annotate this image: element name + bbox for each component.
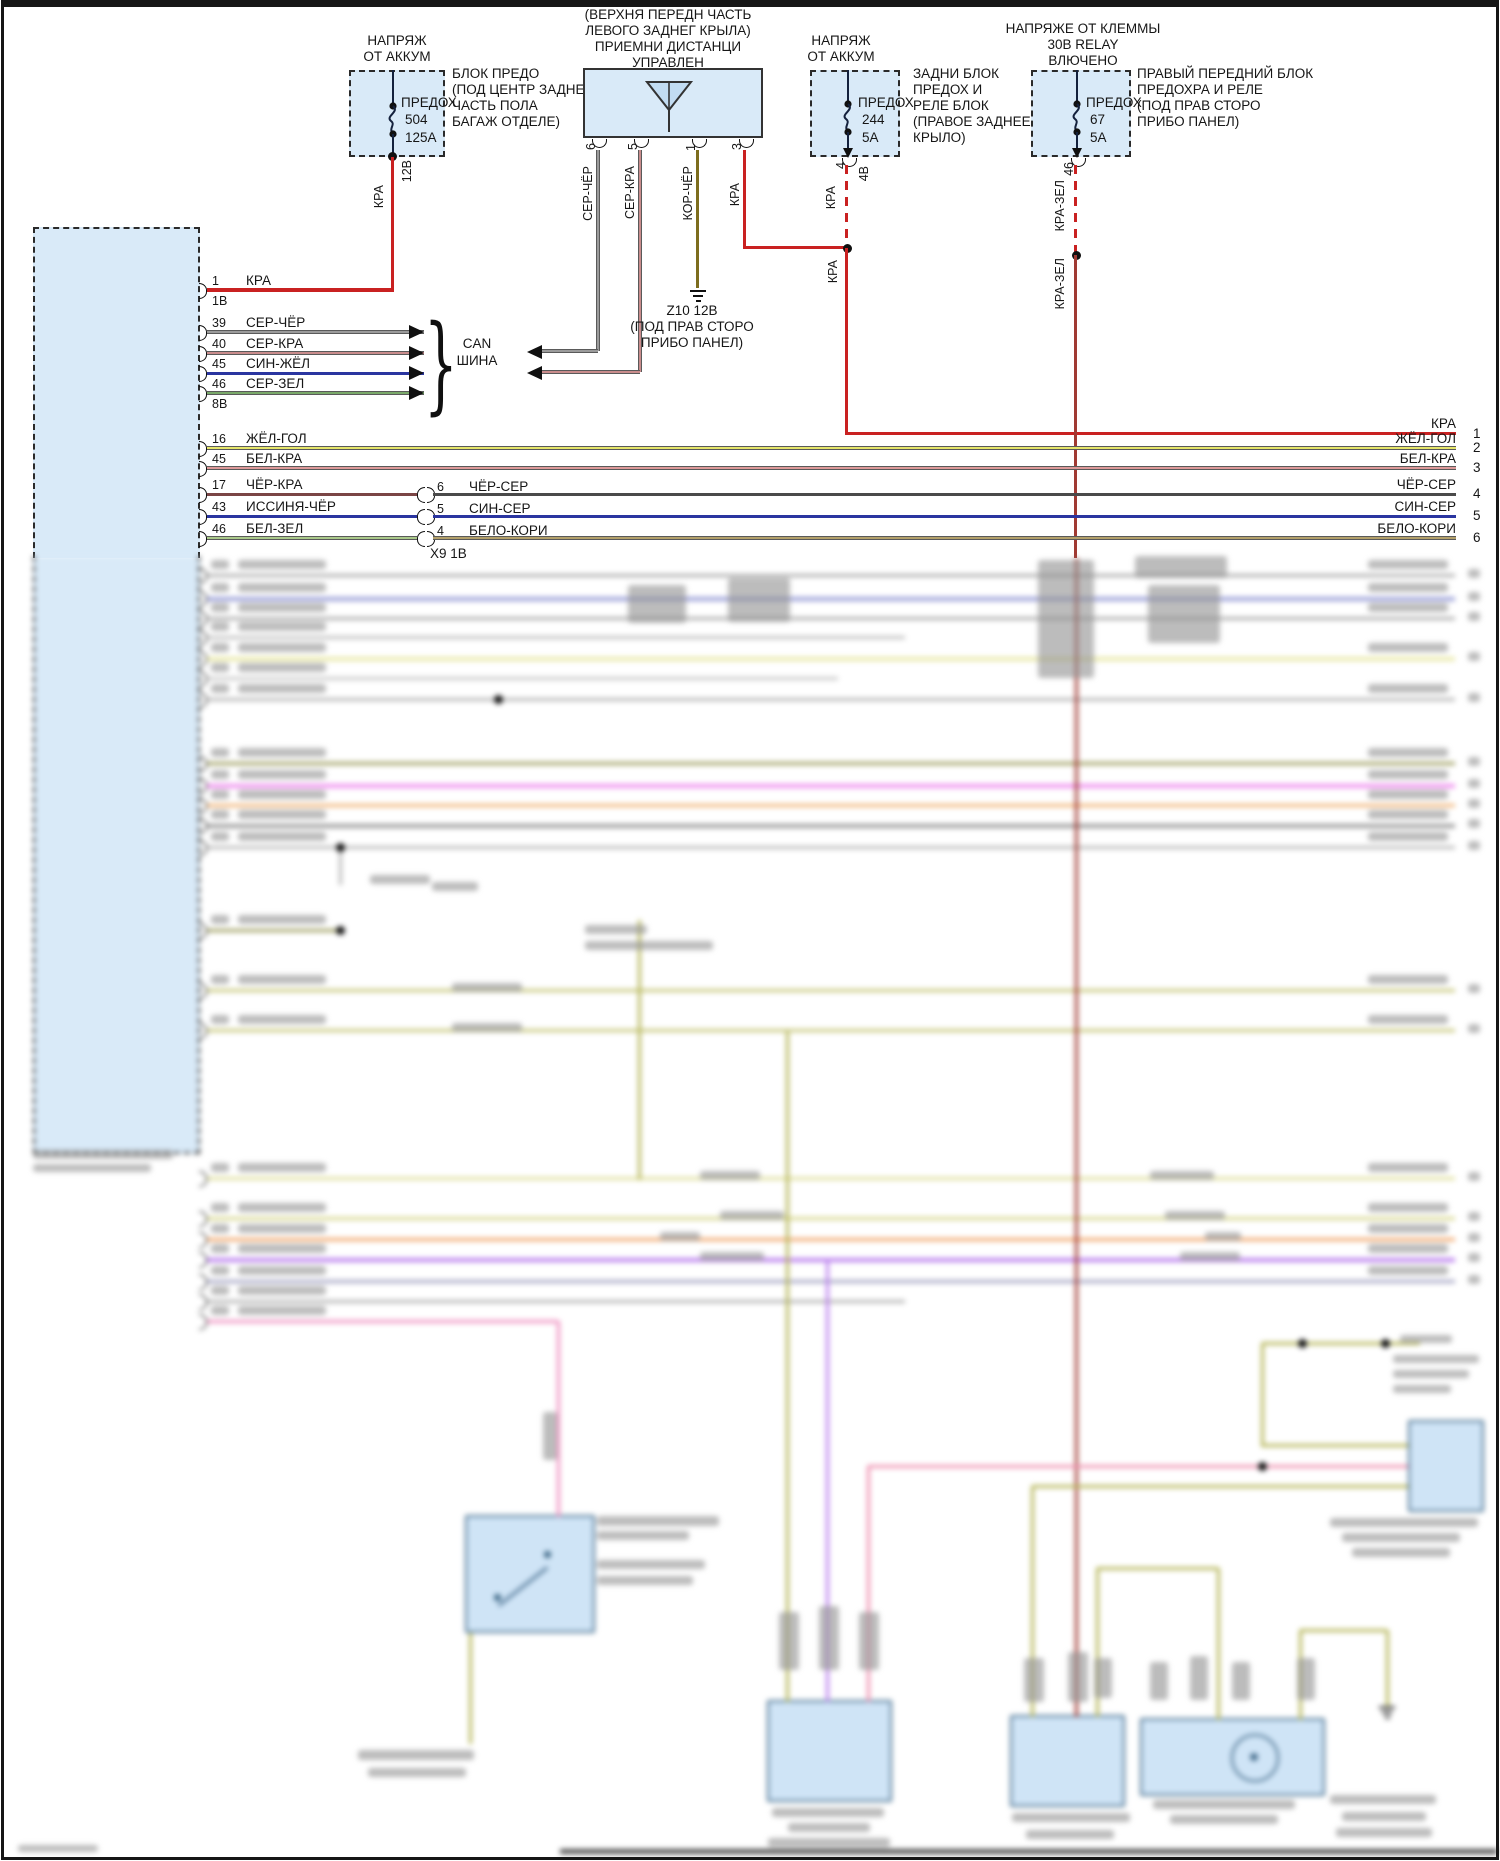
blurred-text [859, 1612, 879, 1670]
blurred-pin-number [211, 832, 229, 841]
component-box [1010, 1715, 1125, 1807]
blurred-pin-number [211, 1266, 229, 1275]
blurred-text [585, 925, 647, 934]
blurred-wire-horizontal [1032, 1485, 1408, 1488]
blurred-wire-label [238, 748, 326, 757]
blurred-wire-vertical [1386, 1630, 1389, 1706]
blurred-text [1180, 1252, 1240, 1261]
pin-arc [199, 591, 207, 607]
wiring-diagram-page: НАПРЯЖ ОТ АККУМ ПРЕДОХ 504 125А БЛОК ПРЕ… [0, 0, 1500, 1861]
blurred-text [1135, 556, 1227, 578]
pin-arc [199, 1294, 207, 1310]
pin-arc [199, 983, 207, 999]
blurred-right-pin [1468, 841, 1480, 850]
junction-dot [336, 843, 345, 852]
blurred-right-label [1368, 1203, 1448, 1212]
blurred-right-pin [1468, 569, 1480, 578]
pin-arc [199, 923, 207, 939]
pin-arc [199, 611, 207, 627]
blurred-right-label [1368, 1224, 1448, 1233]
blurred-text [1026, 1830, 1114, 1839]
blurred-text [1297, 1658, 1315, 1700]
blurred-wire-vertical [1075, 558, 1078, 1717]
blurred-wire-label [238, 915, 326, 924]
blurred-right-pin [1468, 1275, 1480, 1284]
blurred-text [1150, 1662, 1168, 1700]
blurred-text [819, 1606, 839, 1670]
blurred-right-pin [1468, 652, 1480, 661]
blurred-pin-number [211, 975, 229, 984]
blurred-right-pin [1468, 779, 1480, 788]
blurred-text [1170, 1815, 1278, 1824]
blurred-wire-row [207, 1320, 558, 1323]
blurred-text [1352, 1548, 1450, 1557]
pin-arc [199, 651, 207, 667]
blurred-right-pin [1468, 984, 1480, 993]
blurred-text [628, 585, 686, 623]
blurred-right-label [1368, 684, 1448, 693]
blurred-wire-row [207, 989, 1455, 992]
blurred-wire-label [238, 1224, 326, 1233]
blurred-text [728, 578, 790, 622]
pin-arc [199, 818, 207, 834]
blurred-text [1393, 1355, 1479, 1363]
blurred-wire-row [207, 846, 1455, 849]
blurred-right-label [1368, 770, 1448, 779]
blurred-text [1024, 1658, 1044, 1702]
blurred-pin-number [211, 1163, 229, 1172]
blurred-right-label [1368, 603, 1448, 612]
blurred-pin-number [211, 1224, 229, 1233]
blurred-text [33, 1164, 151, 1172]
blurred-wire-horizontal [868, 1465, 1408, 1468]
blurred-wire-row [207, 1029, 1455, 1032]
blurred-wire-label [238, 975, 326, 984]
pin-arc [199, 1252, 207, 1268]
pin-arc [199, 1274, 207, 1290]
blurred-wire-label [238, 603, 326, 612]
blurred-wire-vertical [1261, 1343, 1264, 1447]
blurred-text [700, 1171, 760, 1180]
blurred-wire-label [238, 790, 326, 799]
blurred-wire-label [238, 643, 326, 652]
blurred-wire-vertical [339, 847, 342, 885]
blurred-pin-number [211, 622, 229, 631]
pin-arc [199, 1314, 207, 1330]
blurred-pin-number [211, 583, 229, 592]
blurred-pin-number [211, 1203, 229, 1212]
blurred-text [772, 1808, 884, 1817]
blurred-wire-row [207, 762, 1455, 765]
blurred-text [700, 1252, 764, 1261]
pin-arc [199, 840, 207, 856]
blurred-text [768, 1838, 890, 1847]
blurred-pin-number [211, 748, 229, 757]
blurred-wire-horizontal [1097, 1567, 1218, 1570]
blurred-text [597, 1560, 705, 1569]
blurred-text [1068, 1652, 1088, 1702]
blurred-text [1400, 1335, 1452, 1343]
blurred-text [1342, 1812, 1426, 1821]
pin-arc [199, 798, 207, 814]
blurred-wire-row [207, 804, 1455, 807]
blurred-text [1232, 1662, 1250, 1700]
blurred-right-pin [1468, 1172, 1480, 1181]
blurred-text [1205, 1232, 1241, 1241]
blurred-right-label [1368, 1266, 1448, 1275]
blurred-right-pin [1468, 612, 1480, 621]
blurred-text [370, 875, 430, 884]
blurred-text [452, 1023, 522, 1032]
blurred-text [720, 1211, 784, 1220]
blurred-wire-row [207, 617, 1455, 620]
blurred-pin-number [211, 770, 229, 779]
switch-contact [494, 1594, 501, 1601]
motor-dot [1250, 1753, 1258, 1761]
blurred-right-pin [1468, 819, 1480, 828]
blurred-text [1012, 1813, 1130, 1822]
blurred-wire-label [238, 1266, 326, 1275]
blurred-text [1190, 1656, 1208, 1700]
blurred-text [1330, 1795, 1436, 1804]
blurred-wire-label [238, 1286, 326, 1295]
pin-arc [199, 1171, 207, 1187]
pin-arc [199, 671, 207, 687]
pin-arc [199, 778, 207, 794]
blurred-right-label [1368, 810, 1448, 819]
blurred-text [1393, 1370, 1469, 1378]
blurred-pin-number [211, 663, 229, 672]
component-box [1408, 1420, 1484, 1512]
blurred-wire-row [207, 1217, 1455, 1220]
blurred-text [358, 1750, 474, 1760]
blurred-wire-row [207, 1280, 1455, 1283]
blurred-wire-row [207, 929, 340, 932]
blurred-diagram-area [0, 0, 1500, 1861]
blurred-text [1148, 585, 1220, 643]
blurred-pin-number [211, 1306, 229, 1315]
blurred-wire-row [207, 784, 1455, 788]
blurred-wire-label [238, 770, 326, 779]
blurred-pin-number [211, 790, 229, 799]
blurred-wire-row [207, 657, 1455, 661]
blurred-right-pin [1468, 1024, 1480, 1033]
blurred-pin-number [211, 603, 229, 612]
blurred-wire-vertical [638, 920, 641, 1180]
junction-dot [1381, 1339, 1390, 1348]
blurred-wire-row [207, 824, 1455, 828]
blurred-text [597, 1576, 693, 1585]
blurred-text [1165, 1211, 1225, 1220]
blurred-wire-label [238, 1244, 326, 1253]
blurred-right-label [1368, 1015, 1448, 1024]
blurred-right-label [1368, 643, 1448, 652]
bottom-border-bar [560, 1849, 1497, 1854]
blurred-pin-number [211, 810, 229, 819]
blurred-right-label [1368, 1244, 1448, 1253]
pin-arc [199, 630, 207, 646]
pin-arc [199, 1211, 207, 1227]
junction-dot [1258, 1462, 1267, 1471]
blurred-wire-label [238, 583, 326, 592]
blurred-wire-horizontal [1262, 1444, 1408, 1447]
blurred-text [368, 1768, 466, 1777]
ground-icon [1379, 1706, 1395, 1709]
blurred-wire-label [238, 1306, 326, 1315]
blurred-text [452, 983, 522, 992]
blurred-right-label [1368, 975, 1448, 984]
component-box [465, 1515, 595, 1633]
blurred-wire-label [238, 832, 326, 841]
blurred-wire-vertical [786, 1032, 789, 1702]
blurred-text [1150, 1171, 1214, 1180]
switch-contact [544, 1551, 551, 1558]
blurred-wire-row [207, 1300, 905, 1303]
blurred-text [788, 1823, 870, 1832]
blurred-right-pin [1468, 1212, 1480, 1221]
pin-arc [199, 1023, 207, 1039]
blurred-right-label [1368, 1163, 1448, 1172]
blurred-text [660, 1232, 700, 1241]
blurred-text [1094, 1658, 1112, 1698]
blurred-wire-vertical [469, 1633, 472, 1744]
blurred-right-label [1368, 748, 1448, 757]
blurred-text [1330, 1518, 1478, 1527]
pin-arc [199, 568, 207, 584]
blurred-pin-number [211, 560, 229, 569]
blurred-right-label [1368, 832, 1448, 841]
blurred-text [1153, 1800, 1295, 1809]
blurred-right-pin [1468, 1233, 1480, 1242]
blurred-wire-label [238, 684, 326, 693]
blurred-wire-row [207, 1238, 1455, 1241]
blurred-right-label [1368, 583, 1448, 592]
blurred-pin-number [211, 1286, 229, 1295]
blurred-text [1393, 1385, 1451, 1393]
blurred-pin-number [211, 643, 229, 652]
junction-dot [336, 926, 345, 935]
blurred-wire-row [207, 677, 838, 680]
blurred-wire-label [238, 560, 326, 569]
pin-arc [199, 1232, 207, 1248]
blurred-wire-row [207, 698, 1455, 701]
blurred-text [597, 1531, 689, 1540]
blurred-pin-number [211, 1015, 229, 1024]
junction-dot [1298, 1339, 1307, 1348]
junction-dot [494, 695, 503, 704]
blurred-text [1336, 1828, 1432, 1837]
blurred-right-pin [1468, 693, 1480, 702]
blurred-text [597, 1516, 719, 1526]
blurred-wire-vertical [557, 1321, 560, 1517]
blurred-wire-label [238, 663, 326, 672]
pin-arc [199, 756, 207, 772]
blurred-right-pin [1468, 1253, 1480, 1262]
control-module-box-lower [33, 556, 200, 1154]
blurred-wire-vertical [1217, 1568, 1220, 1720]
pin-arc [199, 692, 207, 708]
ground-icon [1382, 1711, 1392, 1714]
blurred-right-pin [1468, 592, 1480, 601]
blurred-wire-row [207, 597, 1455, 601]
blurred-wire-row [207, 1258, 1455, 1262]
blurred-pin-number [211, 915, 229, 924]
blurred-right-label [1368, 790, 1448, 799]
blurred-pin-number [211, 1244, 229, 1253]
blurred-text [585, 941, 713, 950]
blurred-text [779, 1612, 799, 1670]
blurred-pin-number [211, 684, 229, 693]
blurred-right-pin [1468, 799, 1480, 808]
blurred-text [18, 1845, 98, 1852]
blurred-wire-label [238, 1163, 326, 1172]
blurred-text [33, 1150, 173, 1159]
blurred-text [1038, 560, 1094, 678]
blurred-wire-label [238, 1015, 326, 1024]
blurred-text [543, 1412, 557, 1460]
blurred-wire-label [238, 1203, 326, 1212]
blurred-right-label [1368, 560, 1448, 569]
blurred-right-pin [1468, 757, 1480, 766]
blurred-wire-label [238, 622, 326, 631]
blurred-wire-horizontal [1300, 1629, 1387, 1632]
blurred-wire-horizontal [1262, 1342, 1420, 1345]
ground-icon [1385, 1716, 1390, 1719]
blurred-text [432, 882, 478, 891]
blurred-text [1342, 1533, 1460, 1542]
blurred-wire-row [207, 574, 1455, 577]
blurred-wire-row [207, 1177, 1455, 1180]
blurred-wire-row [207, 636, 905, 639]
blurred-wire-label [238, 810, 326, 819]
component-box [767, 1700, 892, 1802]
